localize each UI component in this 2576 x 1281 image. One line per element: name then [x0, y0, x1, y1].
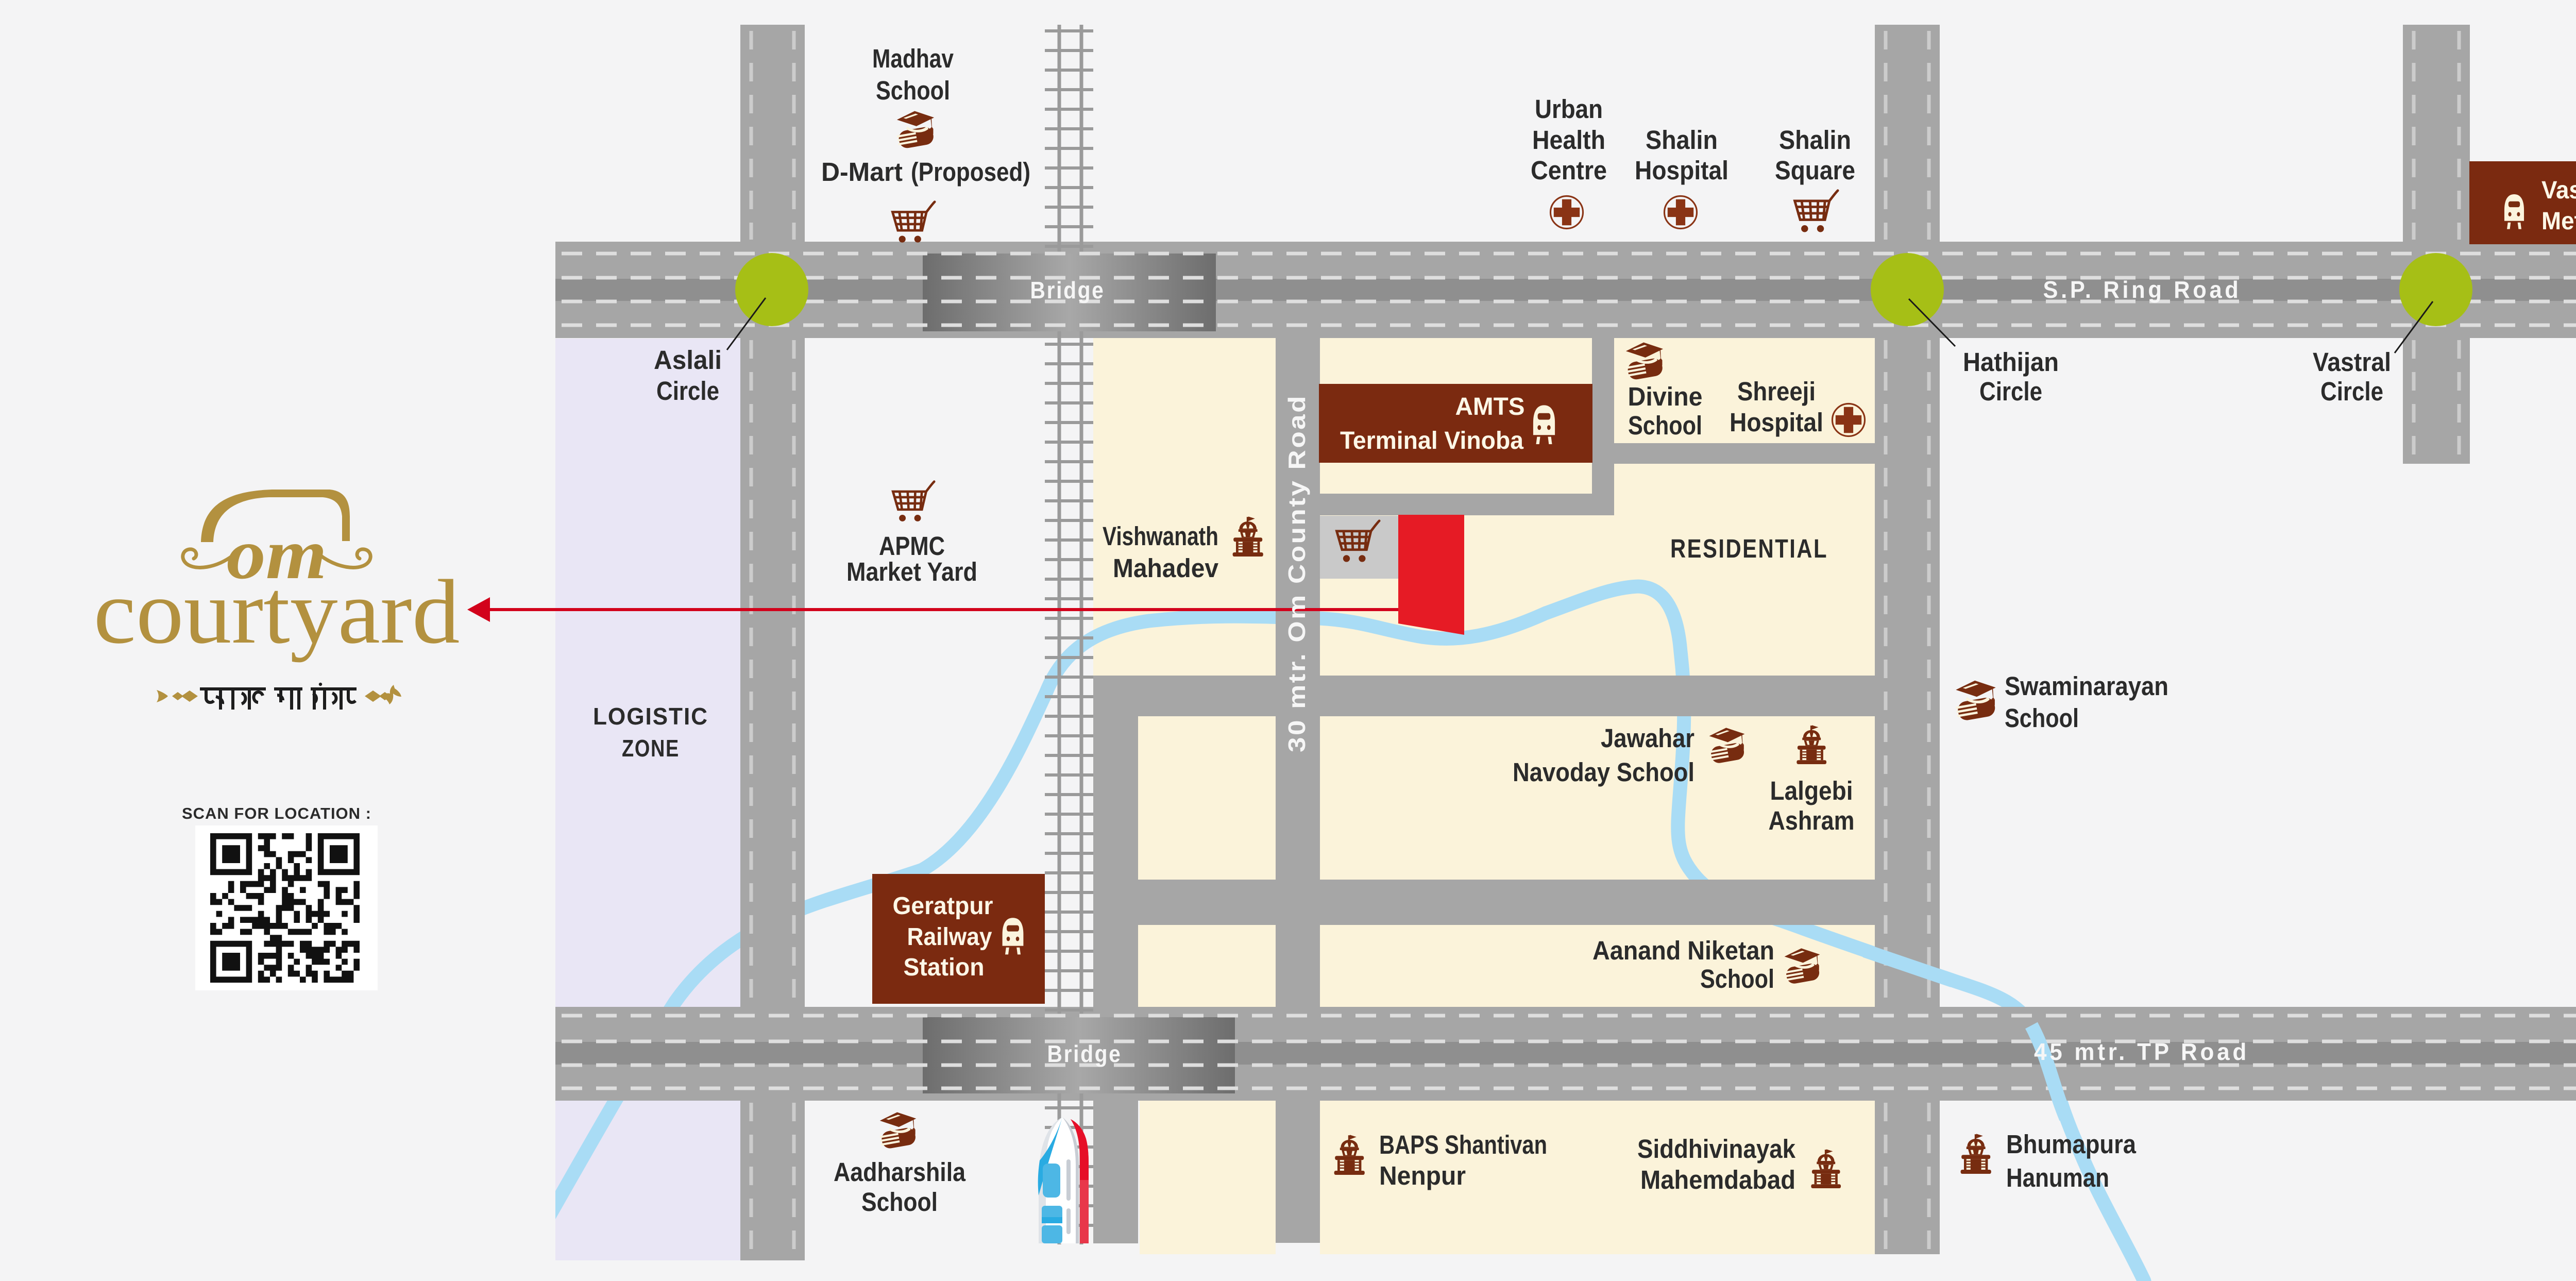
svg-text:Mahemdabad: Mahemdabad: [1640, 1165, 1795, 1194]
svg-text:BAPS Shantivan: BAPS Shantivan: [1379, 1130, 1547, 1159]
svg-text:Vishwanath: Vishwanath: [1103, 521, 1218, 551]
svg-text:Aslali: Aslali: [654, 345, 722, 375]
svg-text:LOGISTIC: LOGISTIC: [593, 703, 708, 730]
svg-text:Geratpur: Geratpur: [893, 892, 993, 920]
svg-text:30 mtr. Om County Road: 30 mtr. Om County Road: [1283, 394, 1310, 752]
svg-text:Navoday School: Navoday School: [1513, 757, 1694, 787]
svg-text:Market Yard: Market Yard: [846, 557, 977, 586]
svg-text:Shalin: Shalin: [1646, 125, 1718, 155]
svg-text:Station: Station: [904, 954, 985, 981]
svg-text:S.P. Ring Road: S.P. Ring Road: [2043, 276, 2242, 303]
svg-text:Railway: Railway: [907, 923, 992, 951]
svg-text:(Proposed): (Proposed): [911, 157, 1030, 187]
svg-text:School: School: [1628, 411, 1702, 440]
svg-text:Lalgebi: Lalgebi: [1770, 776, 1853, 805]
svg-text:Vastral: Vastral: [2313, 347, 2391, 377]
svg-text:Mahadev: Mahadev: [1113, 553, 1219, 583]
svg-text:Bridge: Bridge: [1030, 277, 1105, 304]
svg-text:45 mtr. TP Road: 45 mtr. TP Road: [2034, 1038, 2249, 1065]
svg-text:APMC: APMC: [879, 531, 945, 561]
svg-text:Centre: Centre: [1531, 156, 1607, 185]
svg-text:RESIDENTIAL: RESIDENTIAL: [1670, 534, 1828, 563]
svg-text:Hathijan: Hathijan: [1963, 347, 2059, 377]
svg-text:Vastral: Vastral: [2541, 177, 2576, 204]
svg-text:Ashram: Ashram: [1769, 806, 1855, 835]
svg-text:Siddhivinayak: Siddhivinayak: [1637, 1134, 1796, 1164]
svg-text:Shreeji: Shreeji: [1737, 377, 1816, 406]
svg-text:Circle: Circle: [1979, 377, 2042, 406]
svg-text:Bridge: Bridge: [1047, 1040, 1122, 1067]
svg-text:Aanand Niketan: Aanand Niketan: [1592, 936, 1774, 965]
svg-text:Bhumapura: Bhumapura: [2006, 1130, 2137, 1159]
svg-text:Square: Square: [1775, 156, 1855, 185]
svg-text:D-Mart: D-Mart: [821, 157, 903, 187]
svg-text:School: School: [1700, 964, 1774, 993]
svg-text:School: School: [861, 1187, 938, 1217]
svg-text:Jawahar: Jawahar: [1601, 723, 1694, 753]
svg-text:Hospital: Hospital: [1730, 408, 1823, 437]
svg-text:Swaminarayan: Swaminarayan: [2005, 671, 2168, 701]
svg-text:AMTS: AMTS: [1455, 393, 1525, 420]
svg-text:Hanuman: Hanuman: [2006, 1163, 2109, 1192]
svg-text:Hospital: Hospital: [1635, 156, 1728, 185]
svg-text:SCAN FOR LOCATION :: SCAN FOR LOCATION :: [182, 804, 371, 822]
svg-text:Urban: Urban: [1535, 94, 1603, 124]
svg-text:School: School: [2005, 703, 2079, 733]
svg-text:Aadharshila: Aadharshila: [834, 1157, 966, 1187]
svg-text:School: School: [876, 76, 950, 105]
svg-text:courtyard: courtyard: [94, 561, 460, 663]
svg-text:Shalin: Shalin: [1779, 125, 1851, 155]
svg-text:Madhav: Madhav: [872, 44, 954, 73]
svg-text:ZONE: ZONE: [622, 735, 680, 762]
svg-text:Circle: Circle: [656, 376, 719, 406]
svg-text:Metro Station: Metro Station: [2541, 208, 2576, 235]
svg-text:Circle: Circle: [2320, 377, 2383, 406]
svg-text:Health: Health: [1532, 125, 1605, 155]
svg-text:Terminal Vinoba: Terminal Vinoba: [1340, 427, 1523, 454]
svg-text:Nenpur: Nenpur: [1379, 1161, 1466, 1190]
svg-text:Divine: Divine: [1628, 382, 1703, 411]
